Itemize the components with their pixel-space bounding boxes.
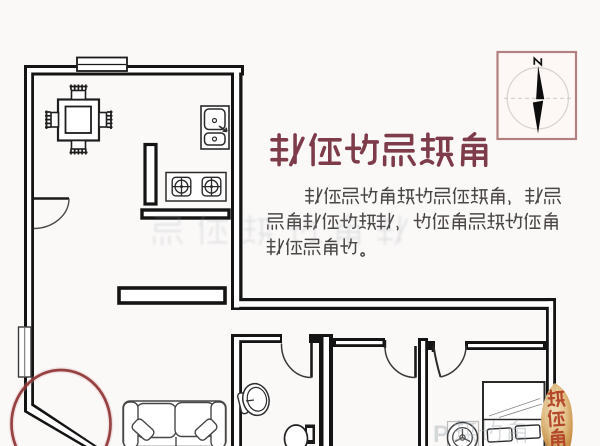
svg-text:P: P xyxy=(433,421,449,446)
